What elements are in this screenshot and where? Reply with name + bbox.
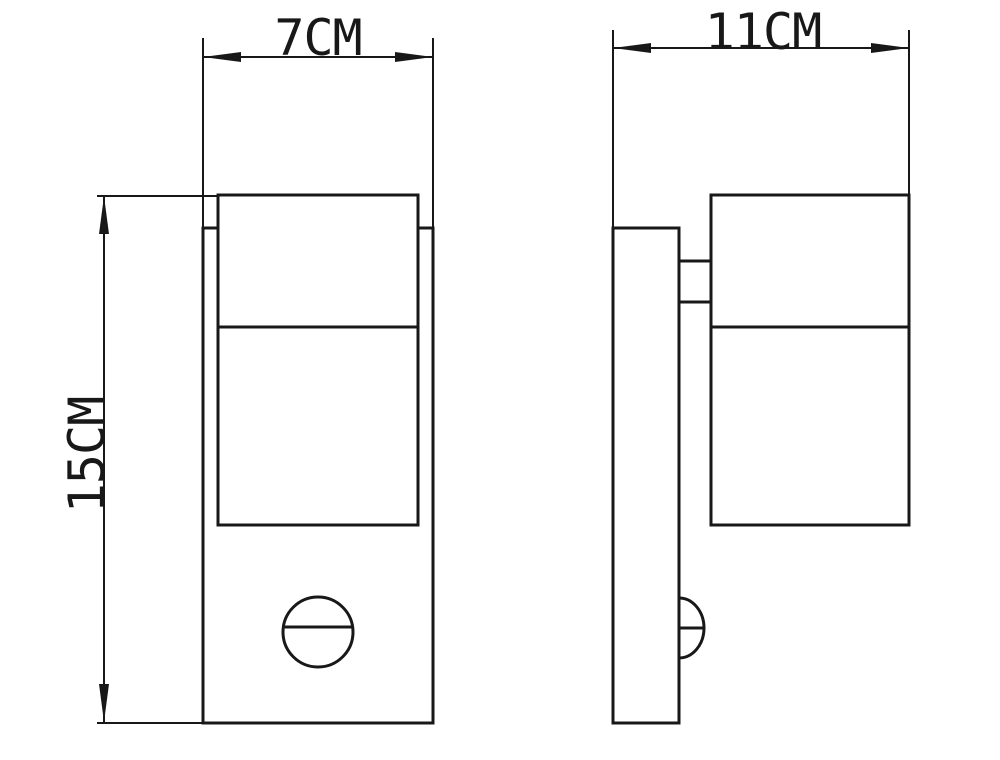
motion-sensor-side-icon — [679, 598, 704, 658]
arrowhead-left-icon — [613, 43, 651, 53]
side-wallplate — [613, 228, 679, 723]
side-view — [613, 195, 909, 723]
arrowhead-up-icon — [99, 196, 109, 234]
dimension-label-height: 15CM — [58, 397, 116, 513]
arrowhead-right-icon — [871, 43, 909, 53]
dimension-label-side-depth: 11CM — [705, 3, 821, 61]
dimension-label-front-width: 7CM — [274, 9, 361, 67]
arrowhead-right-icon — [395, 52, 433, 62]
dimension-drawing-canvas: 7CM 11CM 15CM — [0, 0, 1000, 760]
front-lamp-cylinder — [218, 195, 418, 525]
drawing-page: 7CM 11CM 15CM — [0, 0, 1000, 760]
sensor-circle — [283, 597, 353, 667]
arrowhead-left-icon — [203, 52, 241, 62]
motion-sensor-front-icon — [282, 597, 354, 667]
dimension-height: 15CM — [58, 196, 219, 723]
arrowhead-down-icon — [99, 684, 109, 722]
side-lamp-cylinder — [711, 195, 909, 525]
front-view — [203, 195, 433, 723]
dimension-side-depth: 11CM — [613, 3, 909, 227]
